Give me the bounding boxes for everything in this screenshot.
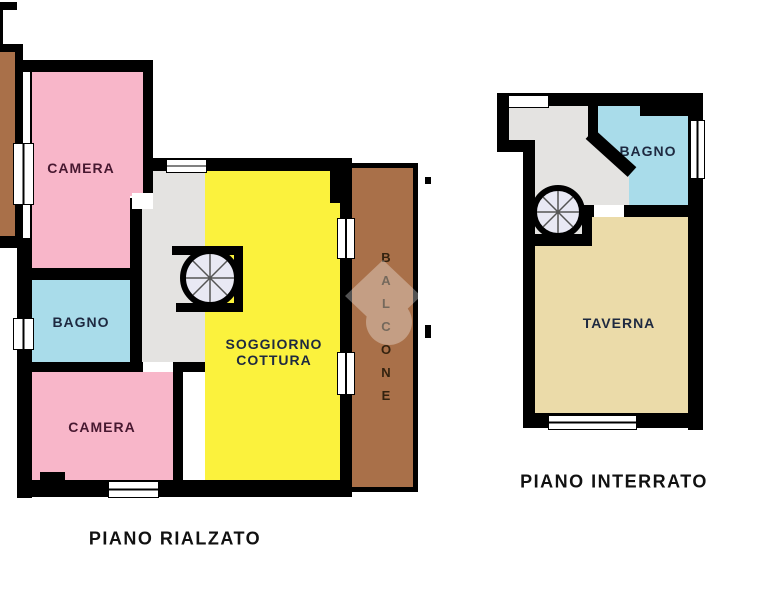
wall: [330, 171, 340, 203]
room-label-balcone: B A L C O N E: [373, 246, 399, 407]
plan-title-piano-rialzato: PIANO RIALZATO: [89, 529, 261, 550]
room-label-bagno: BAGNO: [619, 143, 676, 159]
wall-stub: [425, 177, 431, 184]
door-opening: [143, 362, 173, 372]
balcone-letter: E: [373, 384, 399, 407]
stair-wall: [172, 246, 242, 255]
window: [508, 95, 549, 108]
balcone-letter: L: [373, 292, 399, 315]
hallway: [153, 171, 207, 205]
hallway: [142, 205, 207, 362]
window: [690, 120, 705, 179]
wall: [0, 44, 23, 52]
balcone-letter: A: [373, 269, 399, 292]
wall: [624, 205, 688, 217]
room-label-camera-top: CAMERA: [47, 160, 114, 176]
wall: [588, 106, 598, 140]
balcony-door: [337, 218, 355, 259]
wall: [173, 370, 183, 480]
wall: [143, 60, 153, 195]
wall: [130, 205, 142, 362]
window: [548, 415, 637, 430]
soggiorno-room: [205, 171, 340, 480]
window: [108, 481, 159, 498]
camera-top-room: [32, 72, 143, 196]
wall-pillar: [40, 472, 65, 482]
balcone-letter: O: [373, 338, 399, 361]
balcone-letter: C: [373, 315, 399, 338]
window: [166, 159, 207, 173]
wall: [30, 268, 142, 280]
room-label-taverna: TAVERNA: [583, 315, 656, 331]
door-opening: [132, 193, 153, 209]
stair-wall: [528, 234, 590, 246]
balcone-letter: B: [373, 246, 399, 269]
floorplan-image: CAMERA BAGNO CAMERA SOGGIORNO COTTURA B …: [0, 0, 777, 600]
wall: [23, 60, 153, 72]
window: [337, 352, 355, 395]
plan-title-piano-interrato: PIANO INTERRATO: [520, 472, 708, 493]
room-label-camera-bottom: CAMERA: [68, 419, 135, 435]
wall-stub: [425, 325, 431, 338]
door-opening: [594, 206, 624, 217]
wall: [340, 158, 352, 497]
wall: [523, 140, 535, 428]
balcone-letter: N: [373, 361, 399, 384]
room-label-bagno: BAGNO: [52, 314, 109, 330]
stair-wall: [176, 303, 243, 312]
balcony-border: [352, 487, 418, 492]
balcony-border: [352, 163, 418, 168]
room-label-soggiorno-cottura: SOGGIORNO COTTURA: [226, 336, 323, 368]
wall: [640, 106, 688, 116]
camera-top-room: [32, 196, 130, 268]
window: [13, 318, 34, 350]
balcony-border: [413, 163, 418, 492]
wall: [17, 480, 352, 497]
window: [13, 143, 34, 205]
